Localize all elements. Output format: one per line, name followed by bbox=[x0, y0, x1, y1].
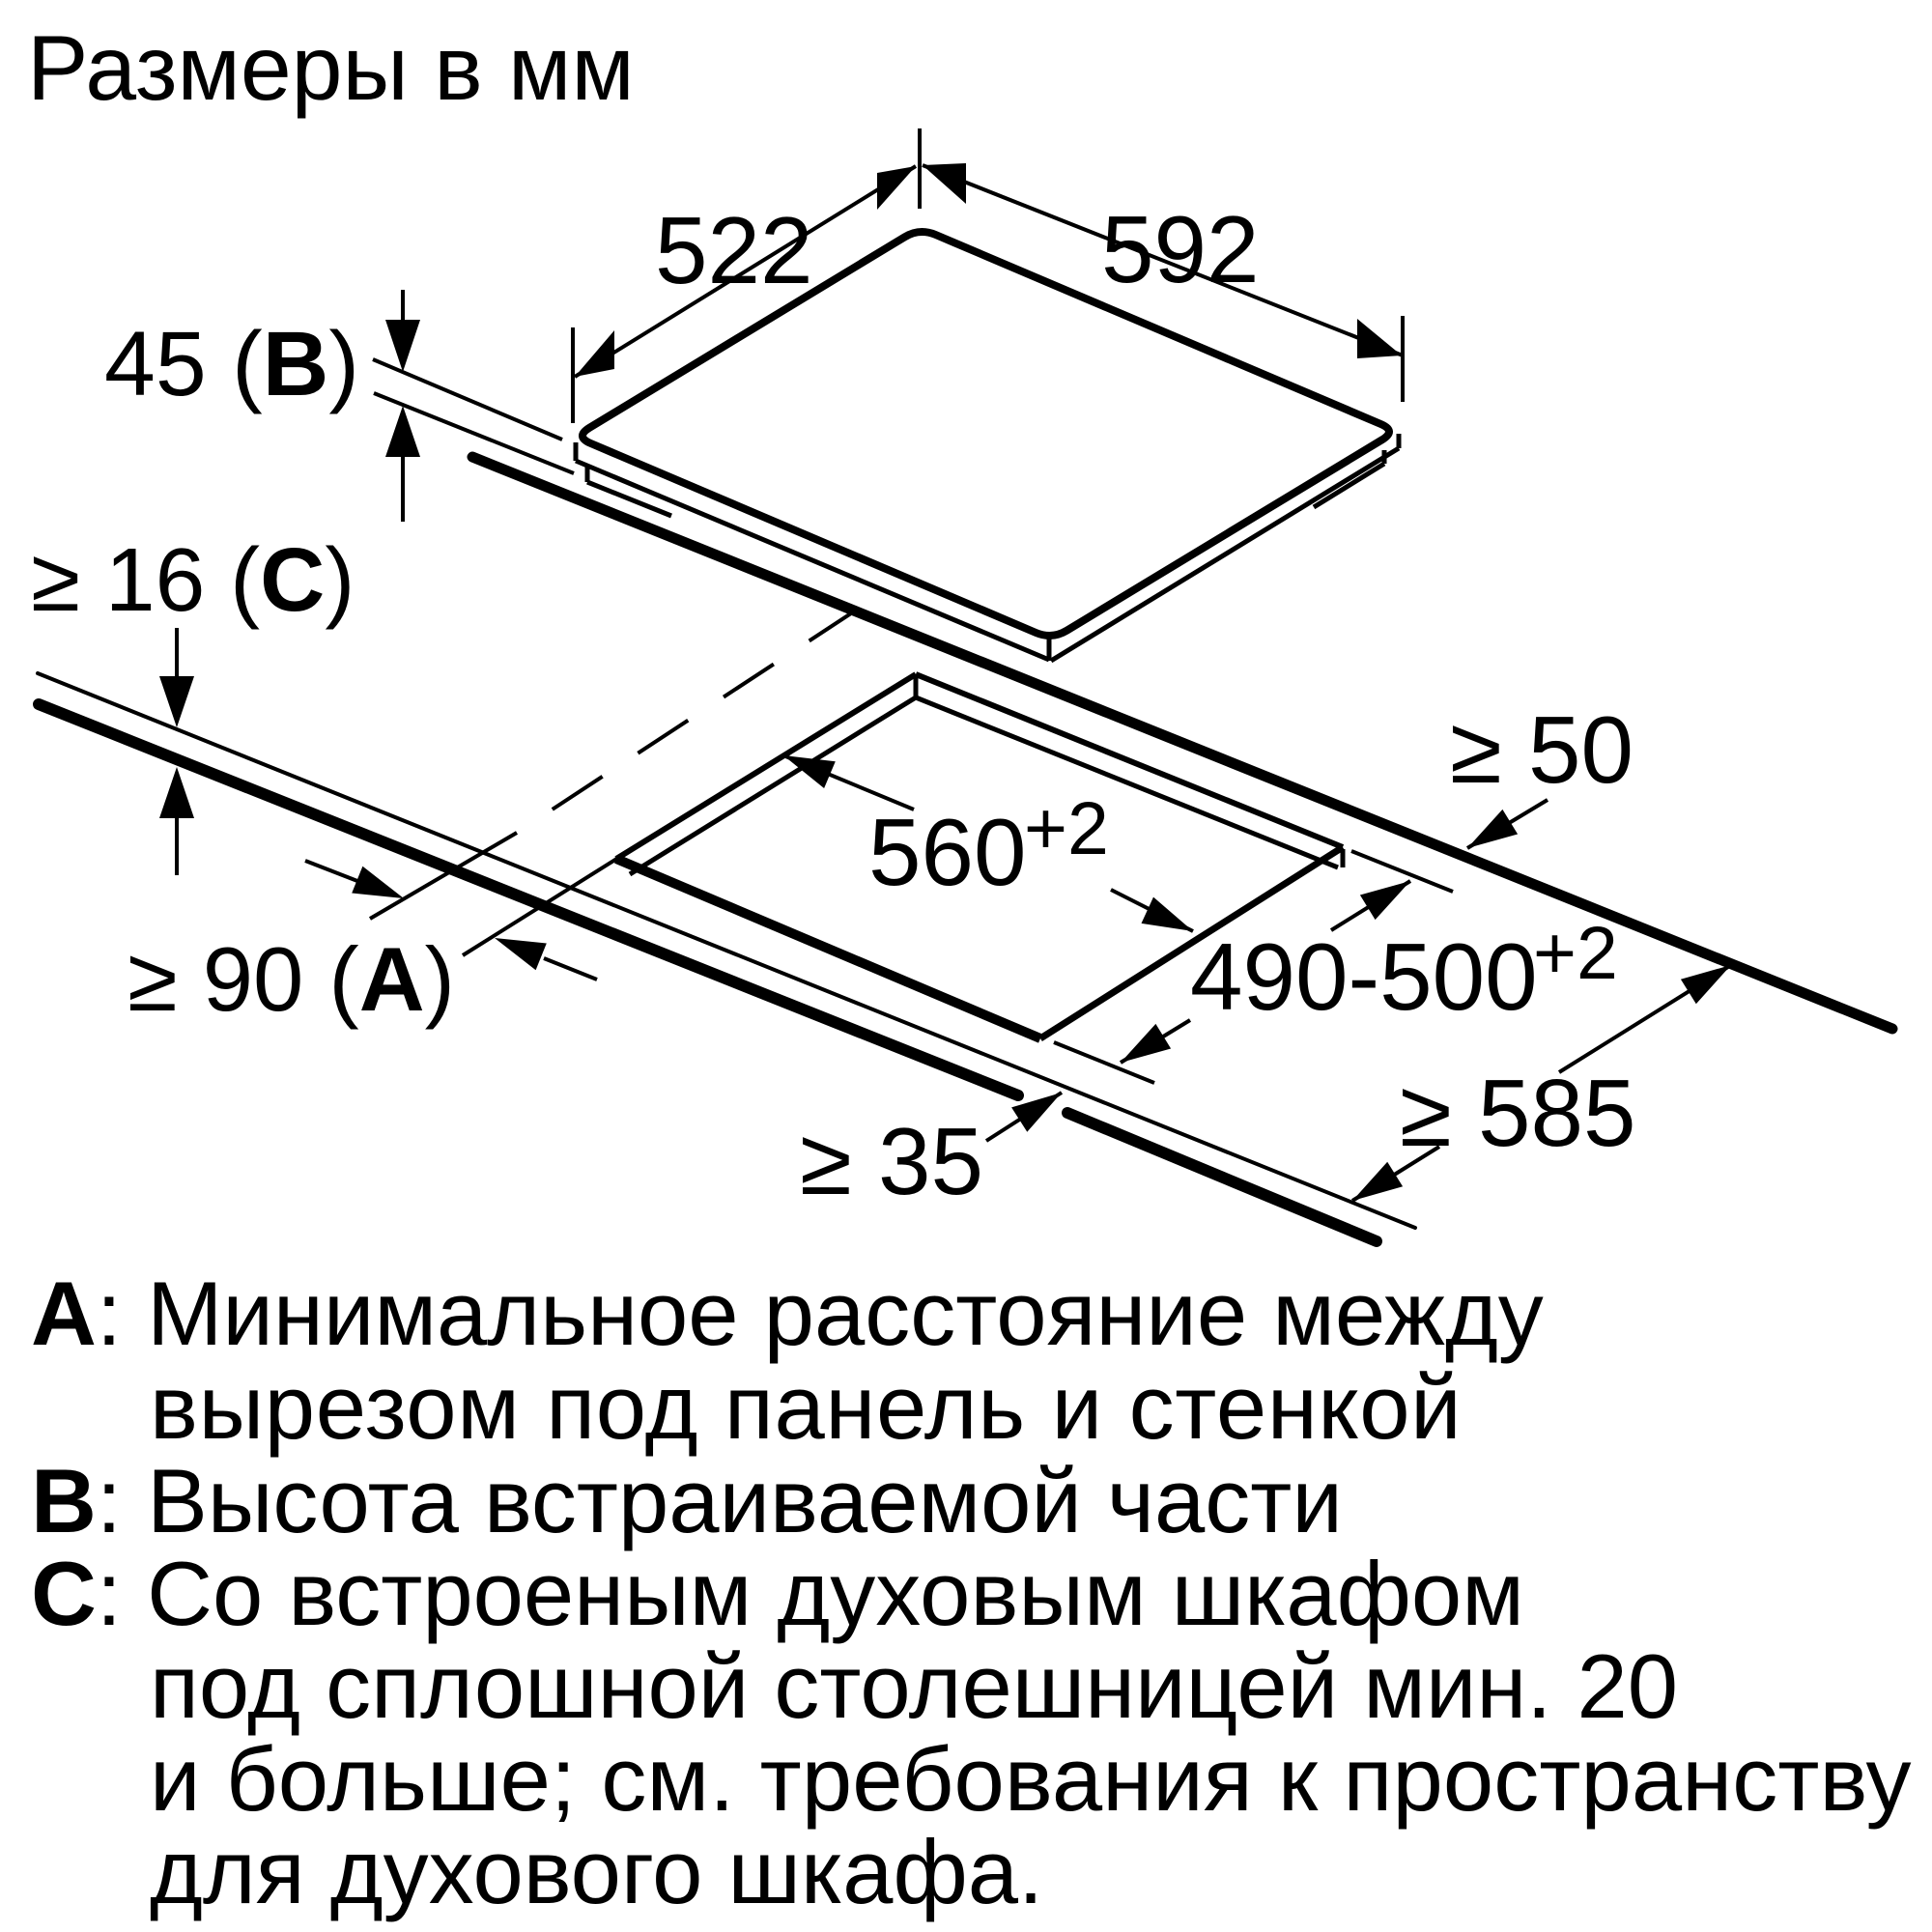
svg-text:≥ 90 (A): ≥ 90 (A) bbox=[128, 928, 455, 1030]
svg-text:+2: +2 bbox=[1024, 787, 1109, 870]
svg-text:А: Минимальное расстояние межд: А: Минимальное расстояние между bbox=[31, 1263, 1544, 1364]
svg-text:560: 560 bbox=[868, 799, 1027, 905]
svg-text:≥ 16 (C): ≥ 16 (C) bbox=[31, 529, 355, 630]
svg-text:и больше; см. требования к про: и больше; см. требования к пространству bbox=[150, 1728, 1912, 1830]
svg-text:вырезом под панель и стенкой: вырезом под панель и стенкой bbox=[150, 1356, 1462, 1458]
svg-text:≥ 585: ≥ 585 bbox=[1400, 1060, 1636, 1166]
svg-text:45 (B): 45 (B) bbox=[104, 313, 359, 415]
svg-text:под сплошной столешницей мин.: под сплошной столешницей мин. 20 bbox=[150, 1635, 1678, 1737]
svg-text:+2: +2 bbox=[1533, 912, 1618, 995]
svg-text:С: Со встроеным духовым шкафом: С: Со встроеным духовым шкафом bbox=[31, 1543, 1524, 1644]
svg-text:для духового шкафа.: для духового шкафа. bbox=[150, 1821, 1043, 1922]
svg-text:592: 592 bbox=[1101, 196, 1260, 302]
svg-text:≥ 50: ≥ 50 bbox=[1450, 696, 1634, 803]
svg-text:Размеры в мм: Размеры в мм bbox=[27, 17, 635, 120]
svg-text:В: Высота встраиваемой части: В: Высота встраиваемой части bbox=[31, 1450, 1343, 1551]
svg-text:522: 522 bbox=[655, 197, 813, 303]
svg-text:≥ 35: ≥ 35 bbox=[800, 1108, 983, 1214]
svg-text:490-500: 490-500 bbox=[1190, 923, 1538, 1030]
